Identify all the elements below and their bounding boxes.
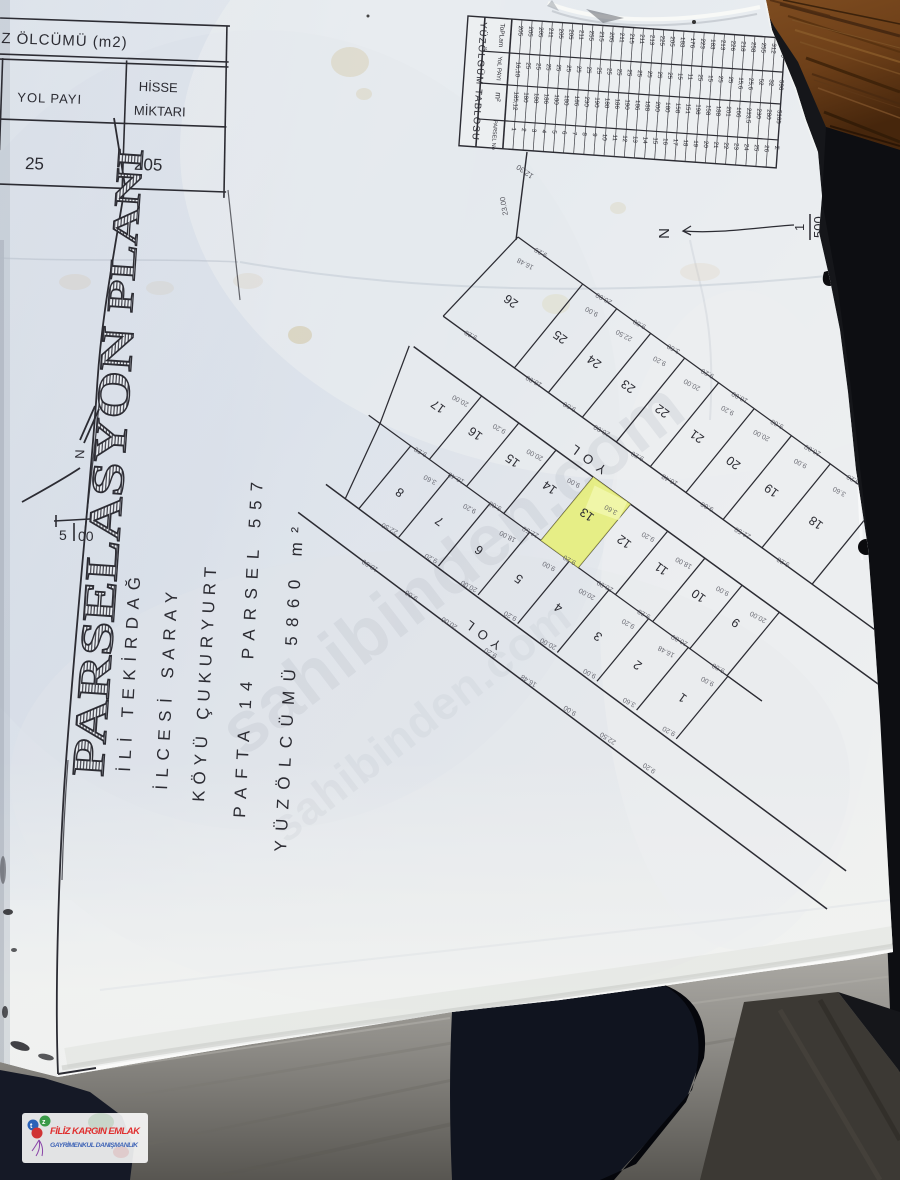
svg-text:11: 11 (611, 134, 618, 141)
svg-text:255: 255 (759, 42, 767, 53)
svg-text:25: 25 (595, 67, 603, 75)
svg-text:186: 186 (572, 96, 580, 107)
svg-text:25: 25 (636, 70, 644, 78)
svg-text:213: 213 (719, 40, 727, 51)
svg-text:180: 180 (562, 95, 570, 106)
svg-text:25: 25 (716, 76, 724, 84)
svg-text:z: z (42, 1119, 46, 1126)
svg-text:25,6: 25,6 (747, 78, 755, 91)
svg-text:16: 16 (661, 138, 669, 146)
svg-text:25: 25 (656, 71, 664, 79)
svg-text:205: 205 (567, 29, 575, 40)
svg-text:10: 10 (601, 134, 609, 142)
svg-text:17: 17 (671, 139, 679, 147)
svg-text:205: 205 (668, 36, 676, 47)
svg-text:596: 596 (777, 80, 785, 91)
svg-text:205: 205 (607, 32, 615, 43)
svg-text:226: 226 (729, 40, 737, 51)
svg-text:201: 201 (724, 106, 732, 117)
svg-text:18: 18 (682, 139, 690, 147)
svg-text:230: 230 (583, 96, 591, 107)
svg-text:N: N (655, 228, 672, 239)
svg-text:20: 20 (702, 141, 710, 149)
svg-text:233,5: 233,5 (744, 108, 752, 124)
svg-text:5: 5 (59, 527, 67, 543)
svg-text:218: 218 (739, 41, 747, 52)
svg-text:200: 200 (653, 101, 661, 112)
svg-text:MİKTARI: MİKTARI (134, 103, 186, 120)
svg-text:15: 15 (651, 137, 659, 145)
svg-text:205: 205 (537, 27, 545, 38)
svg-text:YOL PAYI: YOL PAYI (17, 90, 82, 107)
svg-text:m²: m² (493, 92, 503, 102)
svg-text:19: 19 (692, 140, 700, 148)
svg-text:15: 15 (706, 75, 714, 83)
svg-text:25: 25 (752, 144, 760, 152)
svg-text:158: 158 (704, 105, 712, 116)
svg-text:25: 25 (544, 63, 552, 71)
svg-text:215: 215 (597, 31, 605, 42)
svg-text:25: 25 (555, 64, 563, 72)
svg-text:211: 211 (547, 28, 555, 39)
svg-text:158: 158 (674, 103, 682, 114)
svg-text:180: 180 (552, 94, 560, 105)
svg-text:25: 25 (615, 68, 623, 76)
svg-text:32: 32 (767, 79, 775, 87)
svg-text:205: 205 (557, 28, 565, 39)
svg-text:166: 166 (734, 107, 742, 118)
svg-text:15,6: 15,6 (736, 77, 744, 90)
svg-text:183: 183 (709, 39, 717, 50)
svg-text:25: 25 (646, 71, 654, 79)
svg-text:183: 183 (678, 37, 686, 48)
svg-text:198: 198 (694, 104, 702, 115)
svg-text:21: 21 (712, 141, 720, 149)
svg-text:185,12: 185,12 (511, 91, 519, 111)
svg-text:225: 225 (658, 35, 666, 46)
svg-text:176: 176 (688, 37, 696, 48)
svg-text:258: 258 (749, 42, 757, 53)
svg-text:Σ: Σ (773, 146, 780, 150)
svg-text:25: 25 (565, 65, 573, 73)
svg-text:213: 213 (648, 35, 656, 46)
svg-text:180: 180 (522, 92, 530, 103)
svg-text:1: 1 (792, 224, 807, 231)
svg-text:211: 211 (618, 33, 626, 44)
svg-text:186: 186 (633, 100, 641, 111)
svg-text:188: 188 (714, 105, 722, 116)
svg-text:188: 188 (643, 100, 651, 111)
svg-text:24: 24 (742, 143, 750, 151)
svg-text:25: 25 (696, 74, 704, 82)
svg-text:180: 180 (532, 93, 540, 104)
svg-text:14: 14 (641, 136, 649, 144)
svg-text:223: 223 (698, 38, 706, 49)
svg-text:312: 312 (769, 43, 777, 54)
svg-text:280: 280 (765, 109, 773, 120)
svg-text:215: 215 (628, 33, 636, 44)
svg-text:255: 255 (587, 30, 595, 41)
svg-text:13: 13 (631, 136, 639, 144)
svg-text:230: 230 (755, 108, 763, 119)
svg-text:180: 180 (603, 98, 611, 109)
svg-text:25: 25 (534, 63, 542, 71)
svg-text:25: 25 (585, 66, 593, 74)
svg-text:180: 180 (664, 102, 672, 113)
svg-text:GAYRİMENKUL DANIŞMANLIK: GAYRİMENKUL DANIŞMANLIK (50, 1141, 139, 1149)
svg-text:25: 25 (666, 72, 674, 80)
svg-text:11: 11 (686, 73, 693, 80)
svg-text:25: 25 (625, 69, 633, 77)
svg-text:186: 186 (542, 93, 550, 104)
svg-text:25: 25 (575, 66, 583, 74)
svg-text:190: 190 (623, 99, 631, 110)
svg-text:25: 25 (727, 76, 735, 84)
svg-text:25: 25 (524, 62, 532, 70)
svg-text:5165: 5165 (775, 110, 783, 125)
svg-text:26: 26 (763, 145, 771, 153)
svg-text:190: 190 (593, 97, 601, 108)
svg-text:00: 00 (78, 528, 94, 544)
svg-text:205: 205 (526, 26, 534, 37)
svg-text:211: 211 (577, 30, 585, 41)
svg-text:N: N (72, 449, 87, 459)
svg-text:FİLİZ KARGIN EMLAK: FİLİZ KARGIN EMLAK (50, 1126, 141, 1137)
svg-text:25: 25 (605, 68, 613, 76)
svg-text:186: 186 (613, 98, 621, 109)
svg-text:25: 25 (25, 154, 45, 174)
svg-text:16,10: 16,10 (513, 61, 521, 77)
svg-text:15: 15 (676, 73, 684, 81)
svg-text:22: 22 (722, 142, 730, 150)
svg-text:HİSSE: HİSSE (139, 79, 179, 95)
svg-text:211: 211 (638, 34, 646, 45)
svg-text:205: 205 (516, 25, 524, 36)
svg-text:52: 52 (757, 78, 765, 86)
svg-text:12: 12 (621, 135, 629, 143)
svg-text:23: 23 (732, 143, 740, 151)
svg-text:151: 151 (684, 103, 692, 114)
